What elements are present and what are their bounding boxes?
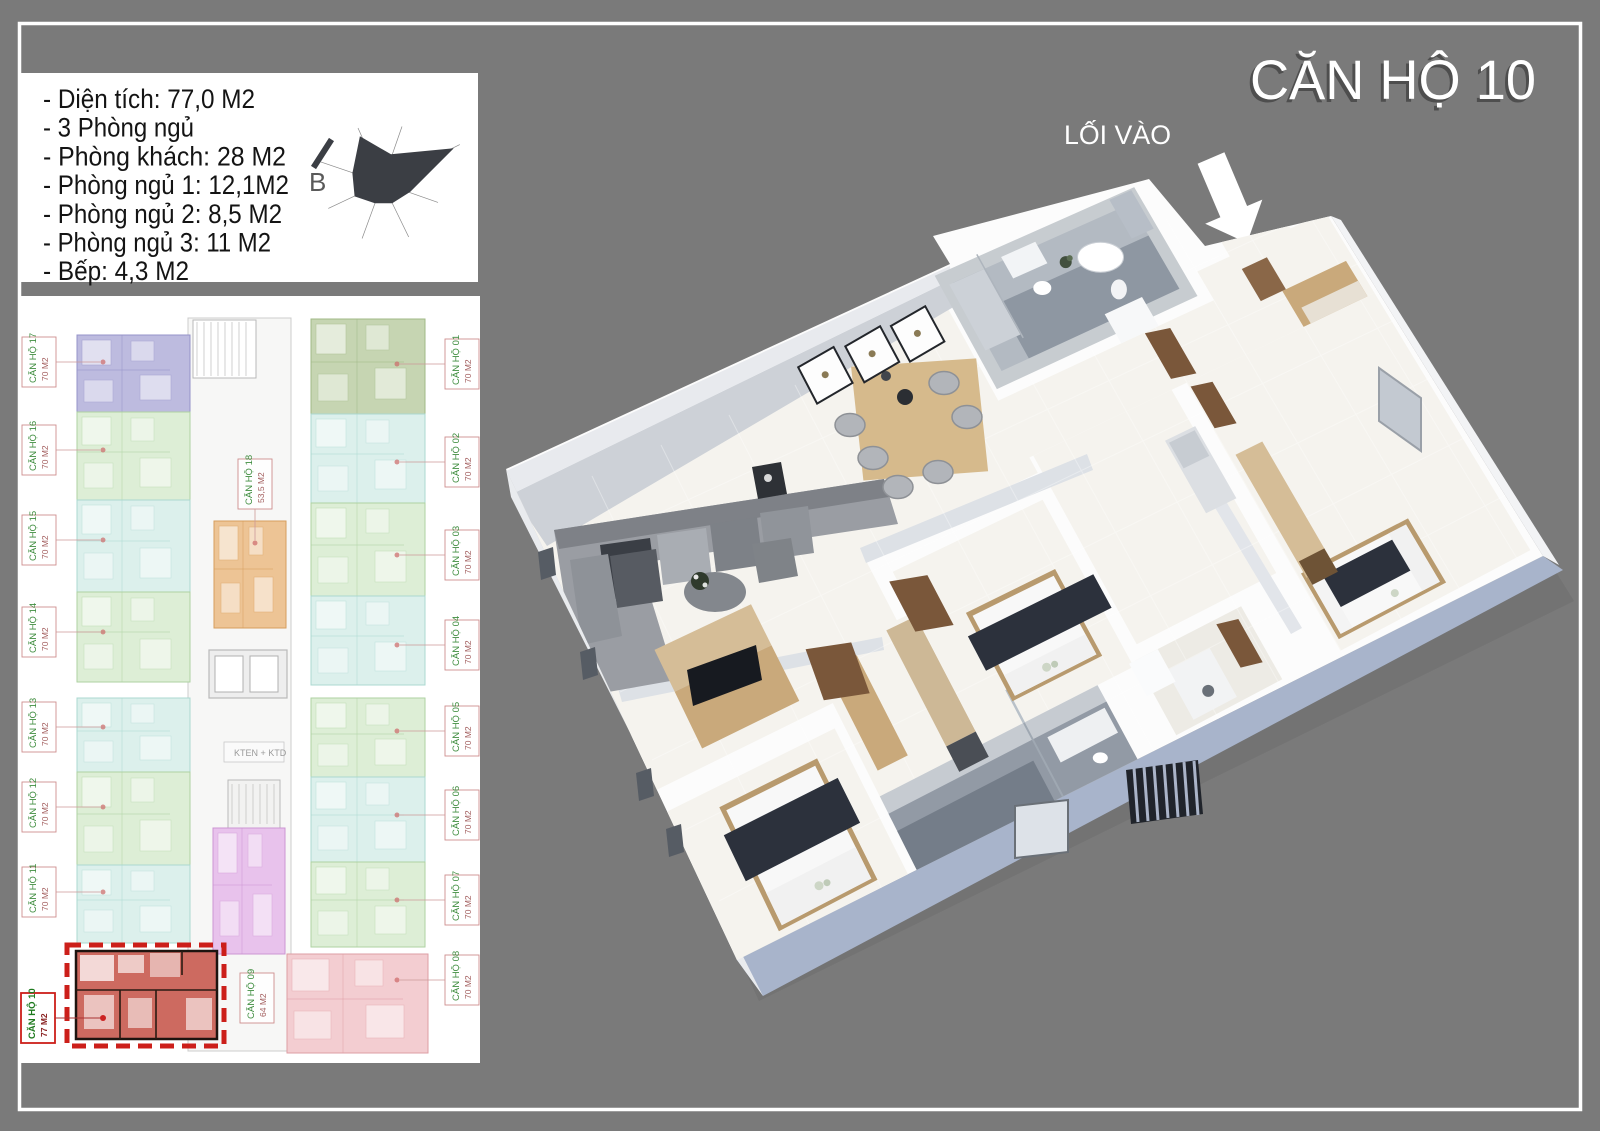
svg-text:CĂN HỘ 13: CĂN HỘ 13 — [28, 698, 39, 748]
svg-text:CĂN HỘ 11: CĂN HỘ 11 — [28, 864, 39, 913]
svg-text:70 M2: 70 M2 — [40, 802, 50, 826]
svg-text:70 M2: 70 M2 — [40, 445, 50, 469]
svg-text:CĂN HỘ 12: CĂN HỘ 12 — [28, 778, 39, 828]
svg-text:CĂN HỘ 01: CĂN HỘ 01 — [451, 335, 462, 385]
svg-text:CĂN HỘ 04: CĂN HỘ 04 — [451, 616, 462, 666]
svg-text:70 M2: 70 M2 — [463, 726, 473, 750]
svg-text:CĂN HỘ 09: CĂN HỘ 09 — [246, 969, 257, 1019]
svg-text:70 M2: 70 M2 — [463, 359, 473, 383]
svg-text:CĂN HỘ 03: CĂN HỘ 03 — [451, 526, 462, 576]
svg-text:CĂN HỘ 14: CĂN HỘ 14 — [28, 603, 39, 653]
svg-text:- Phòng khách: 28 M2: - Phòng khách: 28 M2 — [43, 141, 286, 171]
svg-text:LỐI VÀO: LỐI VÀO — [1064, 118, 1171, 150]
svg-text:CĂN HỘ 16: CĂN HỘ 16 — [28, 421, 39, 471]
svg-text:KTEN + KTD: KTEN + KTD — [234, 748, 287, 758]
svg-text:70 M2: 70 M2 — [463, 550, 473, 574]
svg-text:- Diện tích: 77,0 M2: - Diện tích: 77,0 M2 — [43, 84, 255, 114]
svg-text:70 M2: 70 M2 — [463, 895, 473, 919]
svg-text:70 M2: 70 M2 — [40, 535, 50, 559]
svg-text:70 M2: 70 M2 — [463, 640, 473, 664]
svg-text:77 M2: 77 M2 — [39, 1013, 49, 1037]
svg-text:CĂN HỘ 02: CĂN HỘ 02 — [451, 433, 462, 483]
svg-text:- 3 Phòng ngủ: - 3 Phòng ngủ — [43, 113, 194, 143]
svg-text:CĂN HỘ 10: CĂN HỘ 10 — [26, 988, 38, 1039]
svg-text:70 M2: 70 M2 — [463, 457, 473, 481]
svg-text:70 M2: 70 M2 — [40, 887, 50, 911]
svg-text:70 M2: 70 M2 — [40, 357, 50, 381]
svg-text:- Phòng ngủ 3: 11 M2: - Phòng ngủ 3: 11 M2 — [43, 228, 271, 258]
svg-text:70 M2: 70 M2 — [463, 975, 473, 999]
svg-text:CĂN HỘ 07: CĂN HỘ 07 — [451, 871, 462, 921]
svg-text:53,5 M2: 53,5 M2 — [256, 472, 266, 503]
svg-text:- Phòng ngủ 1: 12,1M2: - Phòng ngủ 1: 12,1M2 — [43, 170, 289, 200]
svg-text:CĂN HỘ 05: CĂN HỘ 05 — [451, 702, 462, 752]
svg-text:B: B — [309, 167, 326, 197]
svg-text:70 M2: 70 M2 — [463, 810, 473, 834]
svg-text:CĂN HỘ 08: CĂN HỘ 08 — [451, 951, 462, 1001]
svg-text:CĂN HỘ 15: CĂN HỘ 15 — [28, 511, 39, 561]
svg-text:70 M2: 70 M2 — [40, 627, 50, 651]
svg-text:CĂN HỘ 06: CĂN HỘ 06 — [451, 786, 462, 836]
svg-text:- Bếp: 4,3 M2: - Bếp: 4,3 M2 — [43, 256, 189, 286]
svg-text:- Phòng ngủ 2: 8,5 M2: - Phòng ngủ 2: 8,5 M2 — [43, 199, 282, 229]
svg-text:CĂN HỘ 10: CĂN HỘ 10 — [1250, 48, 1536, 111]
svg-text:70 M2: 70 M2 — [40, 722, 50, 746]
svg-text:CĂN HỘ 17: CĂN HỘ 17 — [28, 333, 39, 383]
svg-text:64 M2: 64 M2 — [258, 993, 268, 1017]
svg-text:CĂN HỘ 18: CĂN HỘ 18 — [244, 455, 255, 505]
